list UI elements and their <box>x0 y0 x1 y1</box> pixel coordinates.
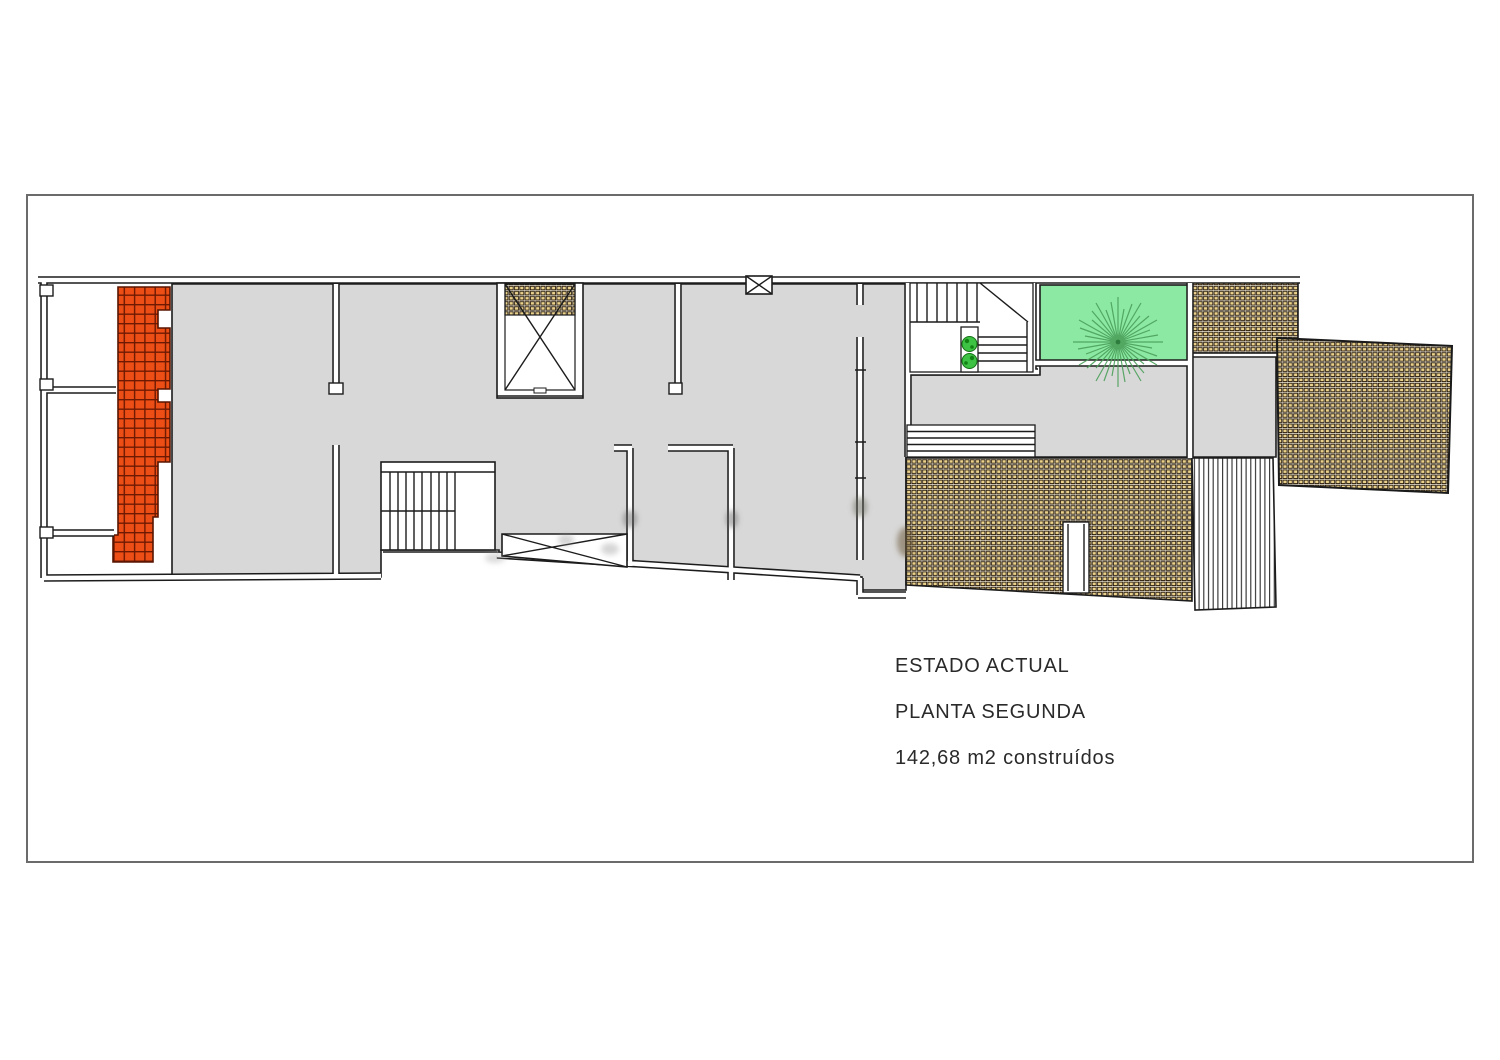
chimney-shaft <box>1063 522 1089 593</box>
terrace-stair-upper <box>910 283 1033 372</box>
plan-floor-label: PLANTA SEGUNDA <box>895 701 1086 723</box>
floor-plan-page: ESTADO ACTUAL PLANTA SEGUNDA 142,68 m2 c… <box>0 0 1500 1060</box>
plan-area-label: 142,68 m2 construídos <box>895 747 1115 769</box>
tile-roof-bottom <box>906 458 1192 601</box>
striped-roof <box>1192 458 1276 610</box>
central-staircase <box>381 462 495 550</box>
vent-box <box>746 276 772 294</box>
terrace-steps <box>907 425 1035 457</box>
plan-state-label: ESTADO ACTUAL <box>895 655 1070 677</box>
patio-skylight <box>497 283 583 398</box>
floor-plan-canvas: ESTADO ACTUAL PLANTA SEGUNDA 142,68 m2 c… <box>0 0 1500 1060</box>
tilted-neighbour-roof <box>1277 338 1452 493</box>
title-block: ESTADO ACTUAL PLANTA SEGUNDA 142,68 m2 c… <box>895 655 1115 769</box>
orange-roof-strip <box>113 287 170 562</box>
